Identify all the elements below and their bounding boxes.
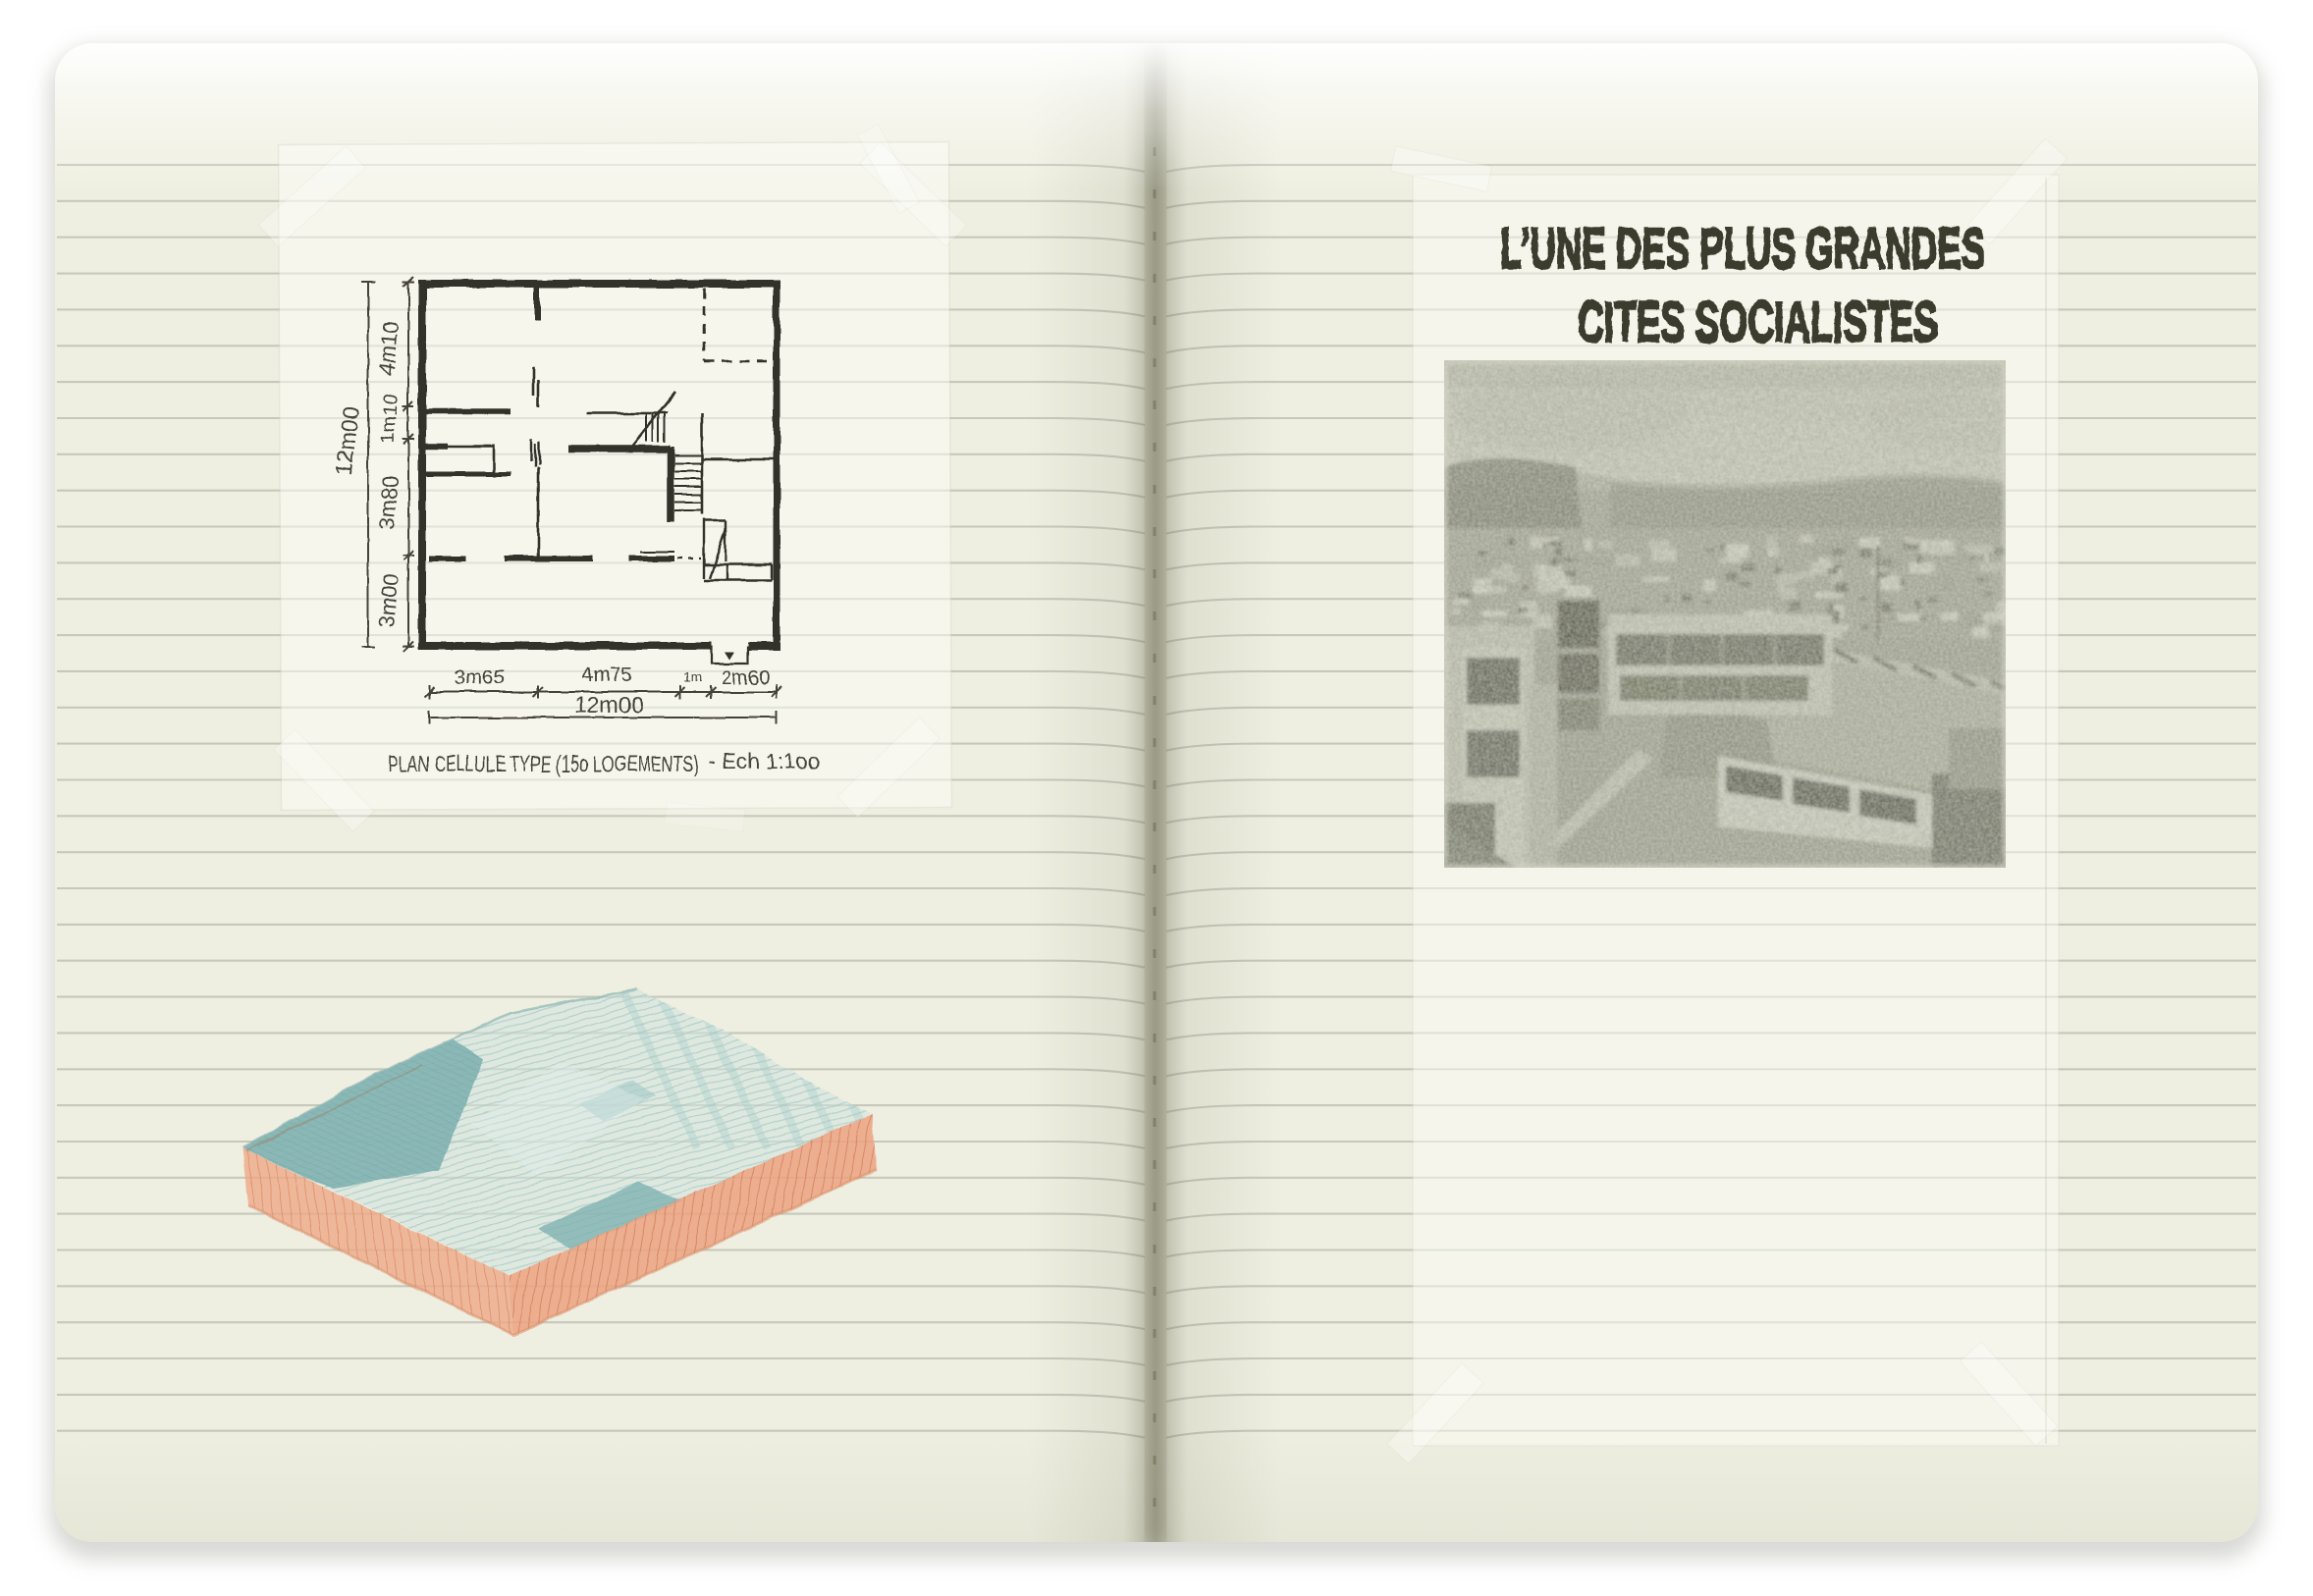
svg-text:1m: 1m xyxy=(684,669,702,684)
svg-text:PLAN CELLULE TYPE (15o LOGEMEN: PLAN CELLULE TYPE (15o LOGEMENTS) xyxy=(388,751,699,776)
svg-text:3m65: 3m65 xyxy=(454,666,506,689)
svg-text:4m10: 4m10 xyxy=(374,320,403,376)
svg-text:CITES SOCIALISTES: CITES SOCIALISTES xyxy=(1578,291,1938,354)
svg-text:1m10: 1m10 xyxy=(377,394,403,445)
svg-text:- Ech 1:1oo: - Ech 1:1oo xyxy=(709,749,820,773)
svg-text:3m00: 3m00 xyxy=(374,572,403,628)
svg-text:3m80: 3m80 xyxy=(374,474,403,530)
svg-text:L’UNE DES PLUS GRANDES: L’UNE DES PLUS GRANDES xyxy=(1500,217,1985,281)
svg-text:12m00: 12m00 xyxy=(574,692,643,718)
svg-text:4m75: 4m75 xyxy=(581,664,633,686)
svg-text:2m60: 2m60 xyxy=(721,667,770,689)
